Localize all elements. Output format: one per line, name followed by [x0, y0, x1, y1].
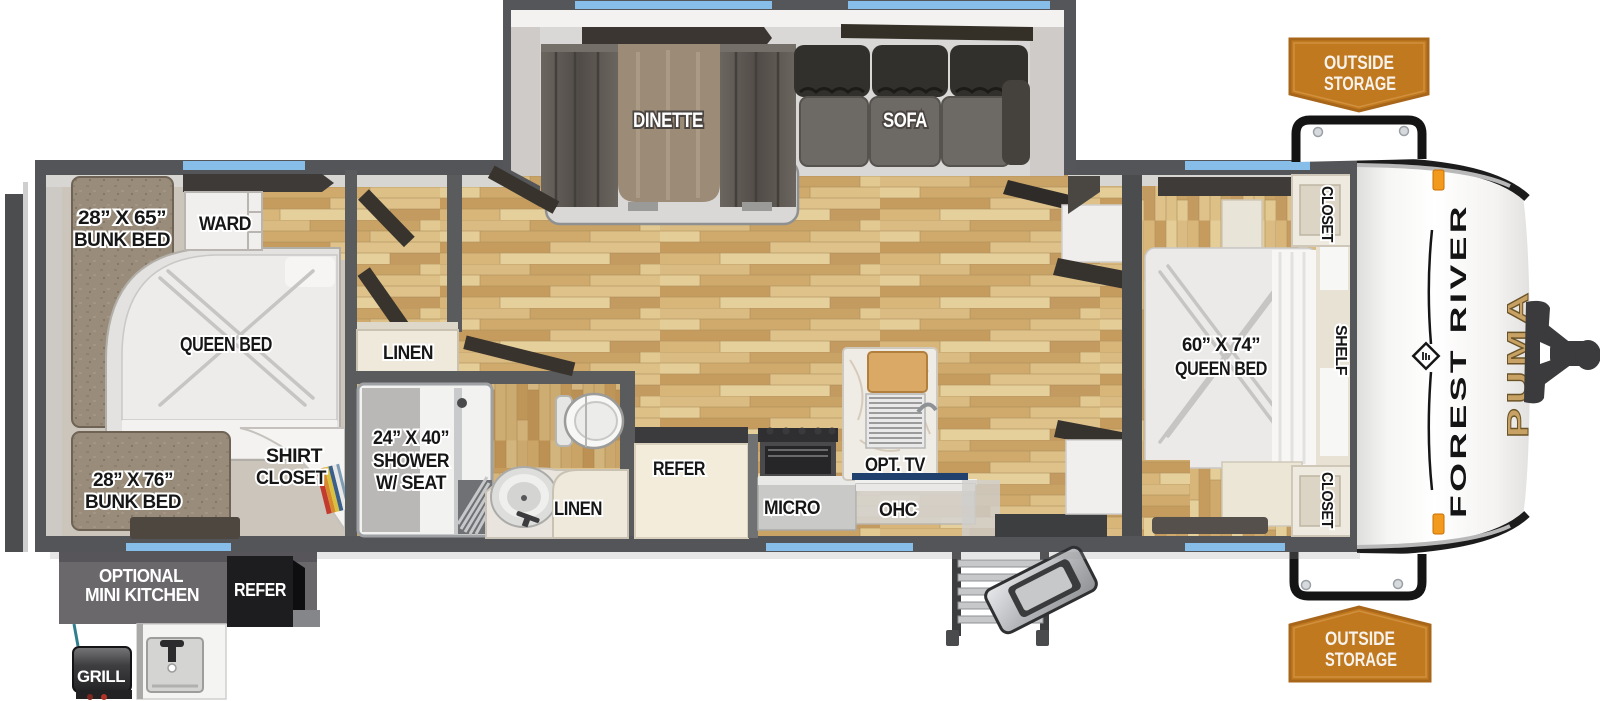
svg-text:BUNK BED: BUNK BED [85, 492, 181, 513]
svg-text:DINETTE: DINETTE [633, 109, 703, 132]
svg-text:W/ SEAT: W/ SEAT [376, 473, 447, 494]
svg-text:CLOSET: CLOSET [1318, 472, 1335, 529]
svg-text:60” X 74”: 60” X 74” [1182, 335, 1260, 356]
svg-text:QUEEN BED: QUEEN BED [1175, 359, 1267, 380]
svg-text:WARD: WARD [199, 214, 251, 235]
svg-text:STORAGE: STORAGE [1325, 650, 1397, 671]
svg-text:28” X 65”: 28” X 65” [78, 208, 166, 229]
svg-text:SHIRT: SHIRT [266, 446, 323, 467]
svg-text:CLOSET: CLOSET [256, 468, 327, 489]
svg-text:28” X 76”: 28” X 76” [93, 470, 173, 491]
svg-text:OUTSIDE: OUTSIDE [1325, 629, 1395, 650]
svg-text:BUNK BED: BUNK BED [74, 230, 170, 251]
svg-text:LINEN: LINEN [383, 343, 433, 364]
svg-text:MINI KITCHEN: MINI KITCHEN [85, 585, 199, 605]
svg-text:STORAGE: STORAGE [1324, 74, 1396, 95]
svg-text:SOFA: SOFA [883, 109, 927, 132]
svg-text:LINEN: LINEN [554, 499, 602, 520]
svg-text:REFER: REFER [234, 580, 286, 600]
svg-text:SHELF: SHELF [1332, 325, 1349, 376]
svg-text:OPT. TV: OPT. TV [865, 455, 926, 476]
svg-text:REFER: REFER [653, 459, 706, 480]
svg-text:MICRO: MICRO [764, 498, 820, 519]
svg-text:OHC: OHC [879, 500, 918, 521]
svg-text:FOREST RIVER: FOREST RIVER [1446, 203, 1471, 518]
svg-text:SHOWER: SHOWER [373, 451, 450, 472]
svg-text:GRILL: GRILL [77, 667, 125, 686]
svg-text:CLOSET: CLOSET [1318, 186, 1335, 243]
svg-text:QUEEN BED: QUEEN BED [180, 334, 272, 356]
svg-text:OUTSIDE: OUTSIDE [1324, 53, 1394, 74]
svg-text:24” X 40”: 24” X 40” [373, 428, 449, 449]
svg-text:OPTIONAL: OPTIONAL [99, 566, 183, 586]
